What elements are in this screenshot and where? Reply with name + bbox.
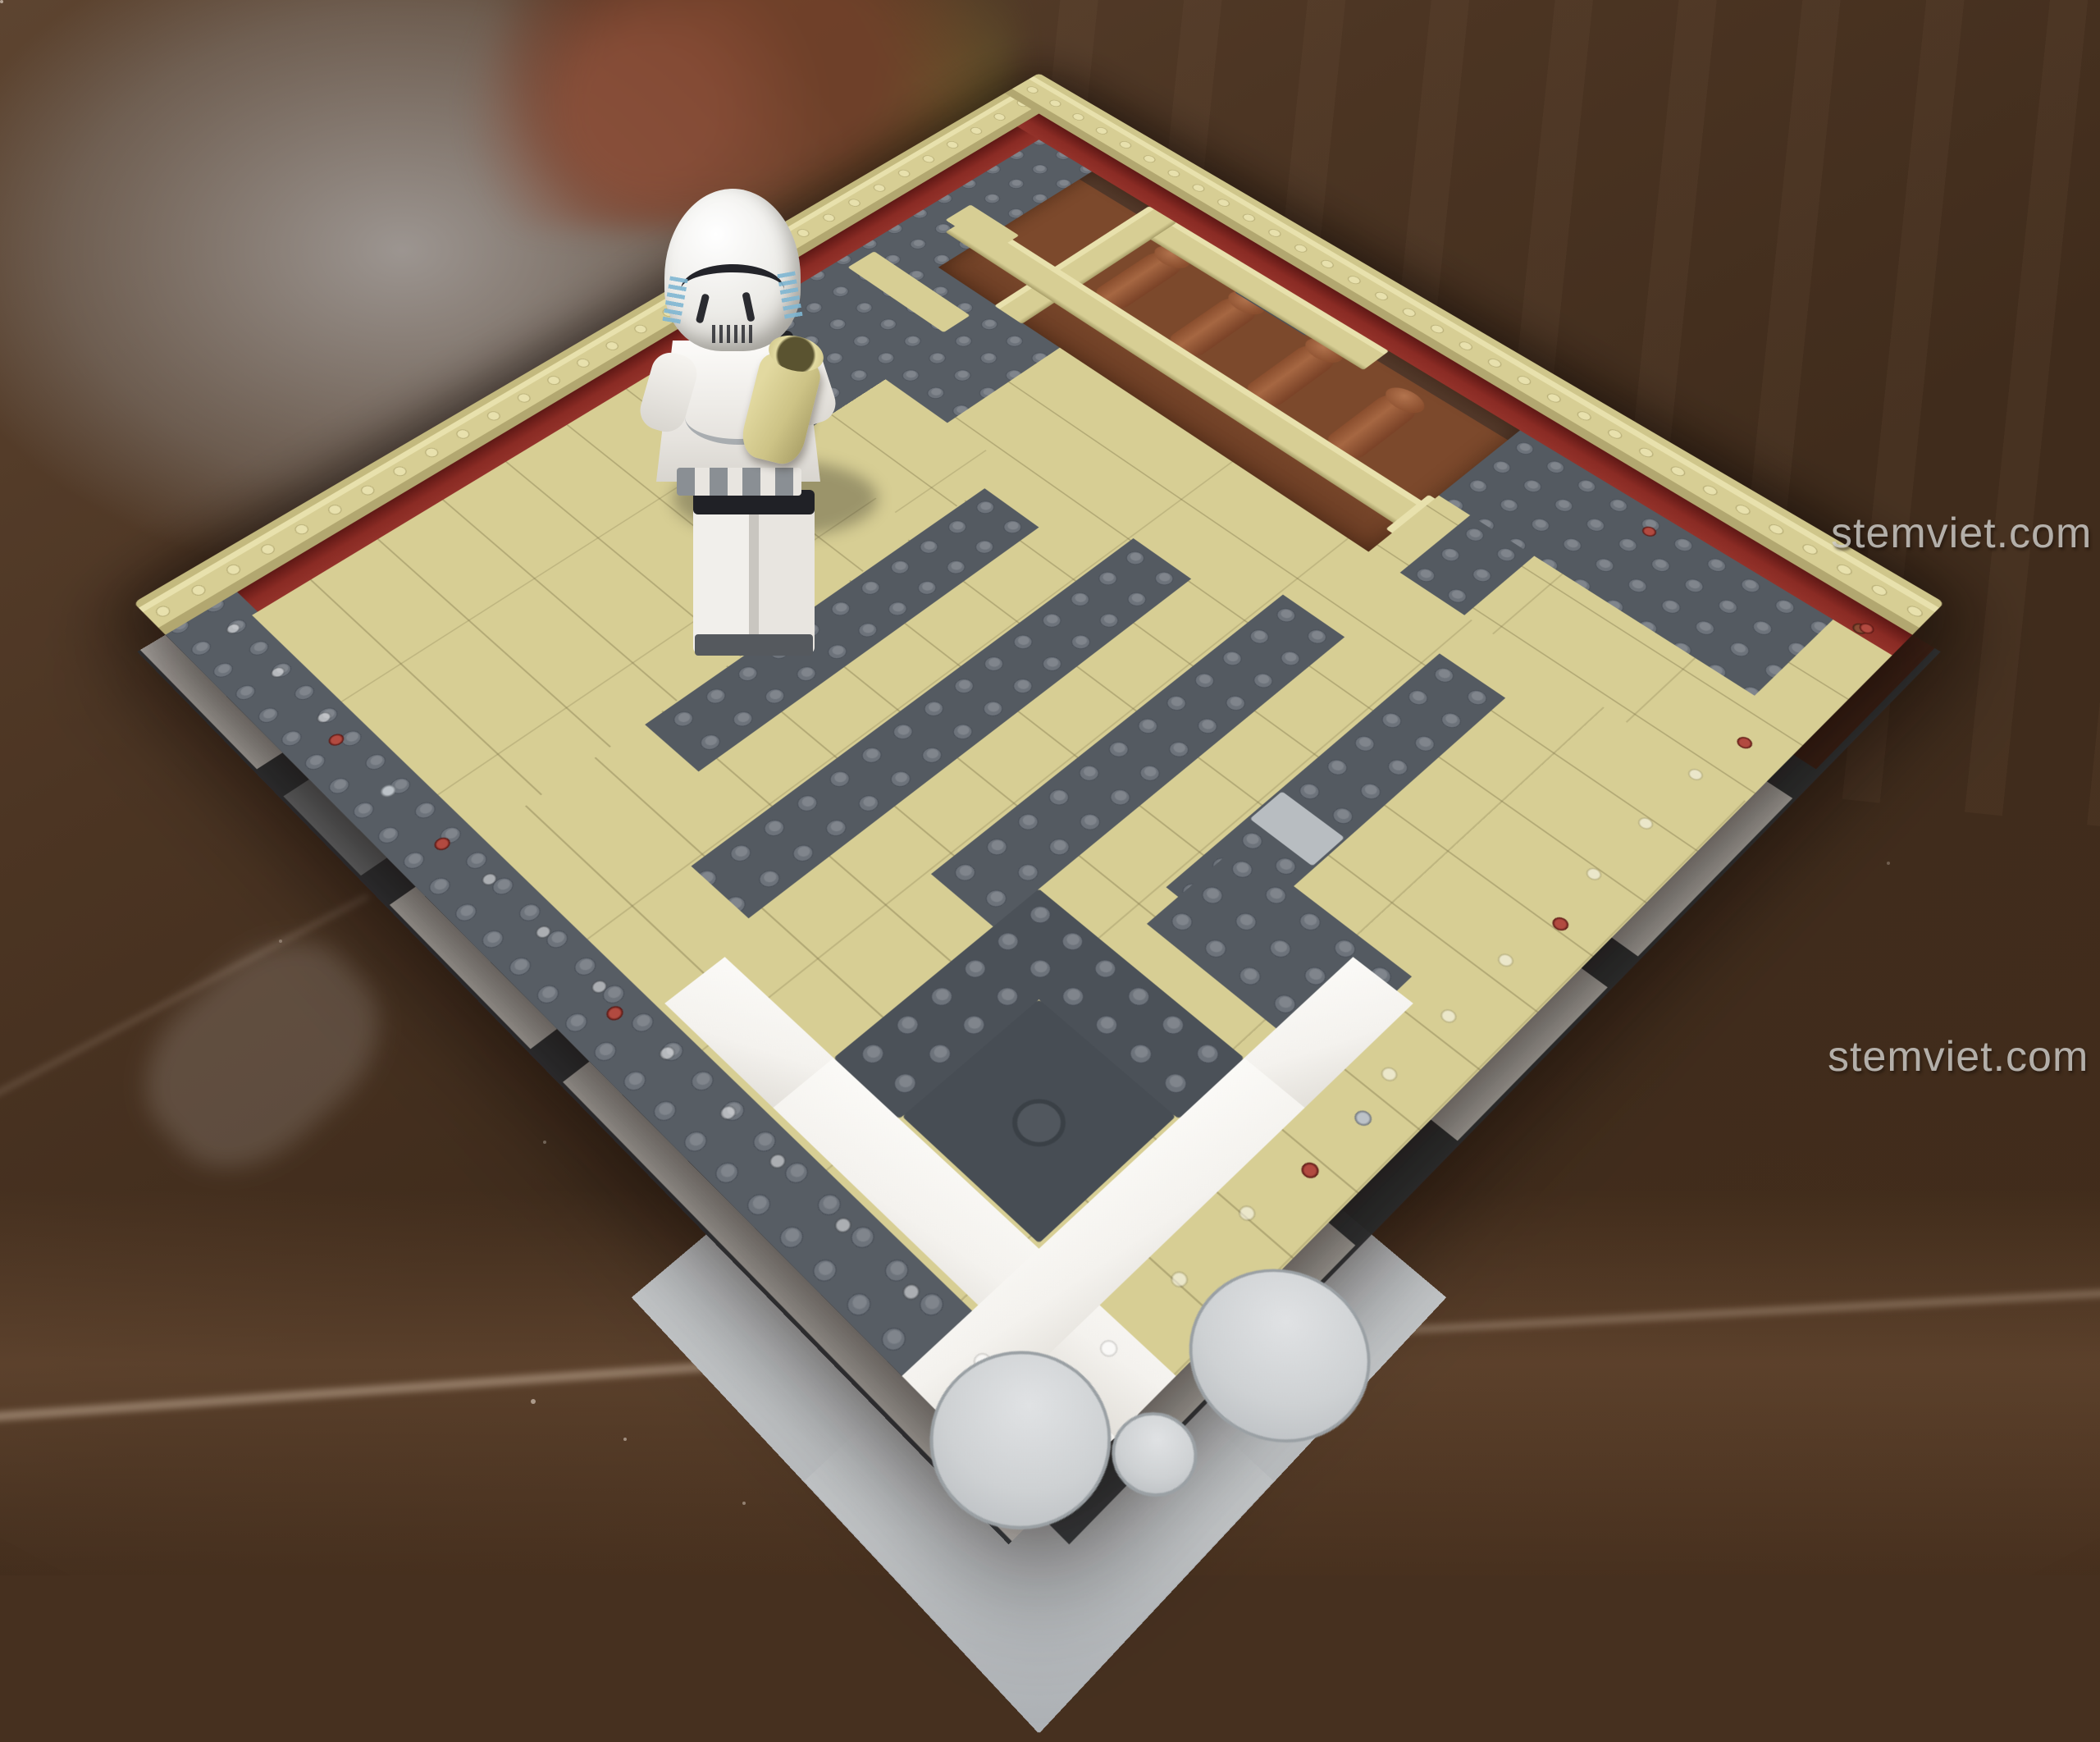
watermark: stemviet.com: [1828, 1032, 2089, 1081]
minifig-feet: [695, 634, 813, 656]
watermark: stemviet.com: [1831, 509, 2092, 558]
photo-vignette: [0, 0, 2100, 1575]
helmet-side-vent: [777, 272, 802, 320]
helmet-side-vent: [662, 277, 687, 325]
helmet-brow: [681, 264, 784, 315]
minifig-legs: [693, 490, 815, 654]
stormtrooper-helmet: [664, 189, 801, 351]
helmet-mouth-vent: [712, 325, 755, 343]
